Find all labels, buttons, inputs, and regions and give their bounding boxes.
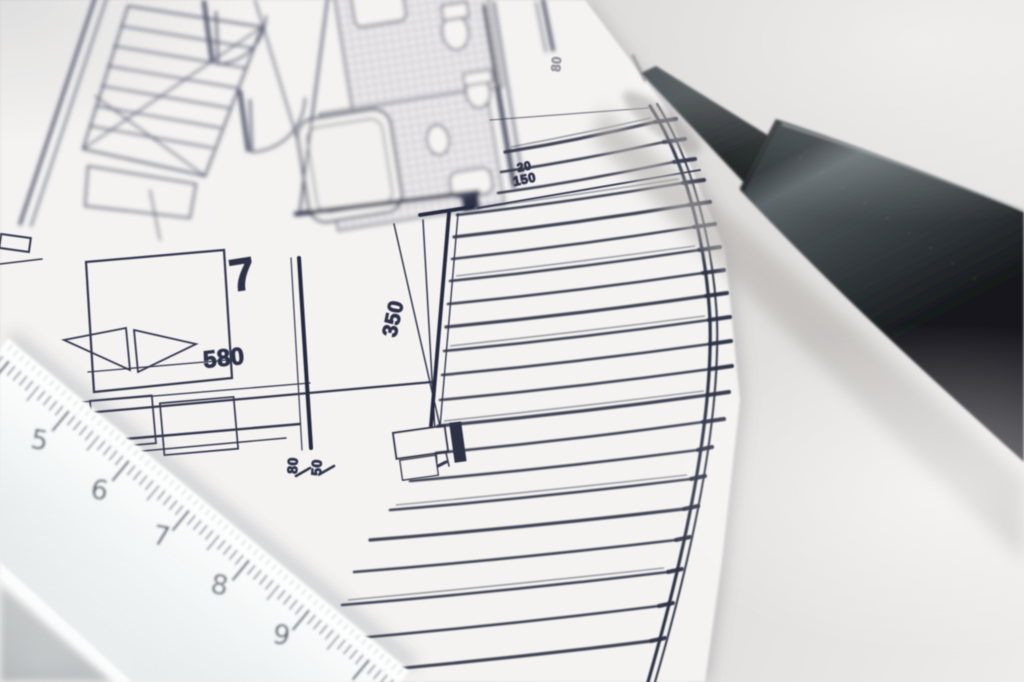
photo-canvas: 7 580 350 80 50 20 150 80 4 5 6 7 8 9: [0, 0, 1024, 682]
window-symbol: [400, 455, 438, 480]
dimension-label-50: 50: [308, 459, 325, 476]
dimension-label-80: 80: [284, 457, 301, 474]
desk-surface: 7 580 350 80 50 20 150 80 4 5 6 7 8 9: [0, 0, 1024, 682]
dimension-label-580: 580: [202, 343, 246, 374]
dimension-label-edge: 80: [548, 56, 564, 73]
